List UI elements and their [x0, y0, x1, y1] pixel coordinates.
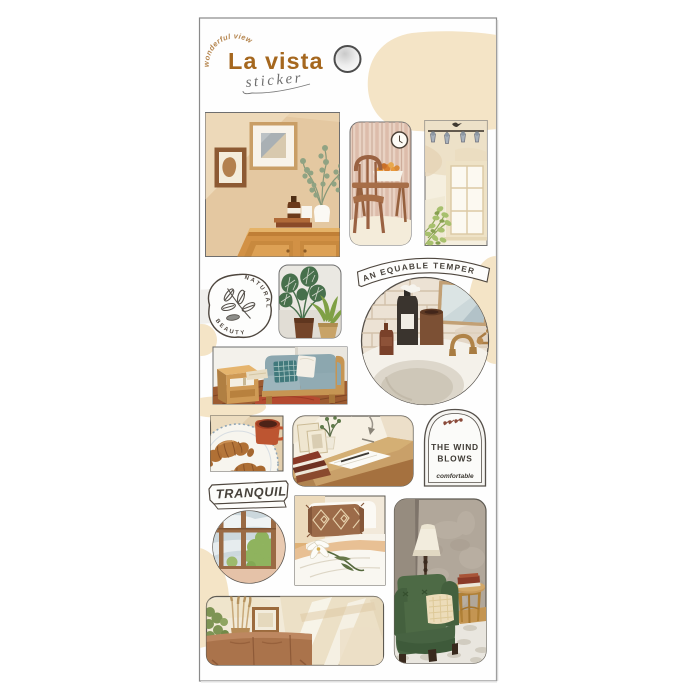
svg-text:comfortable: comfortable [436, 473, 474, 480]
svg-text:BLOWS: BLOWS [437, 454, 472, 464]
svg-text:THE WIND: THE WIND [431, 442, 479, 452]
svg-text:La vista: La vista [228, 48, 324, 74]
svg-text:TRANQUIL: TRANQUIL [215, 483, 287, 501]
